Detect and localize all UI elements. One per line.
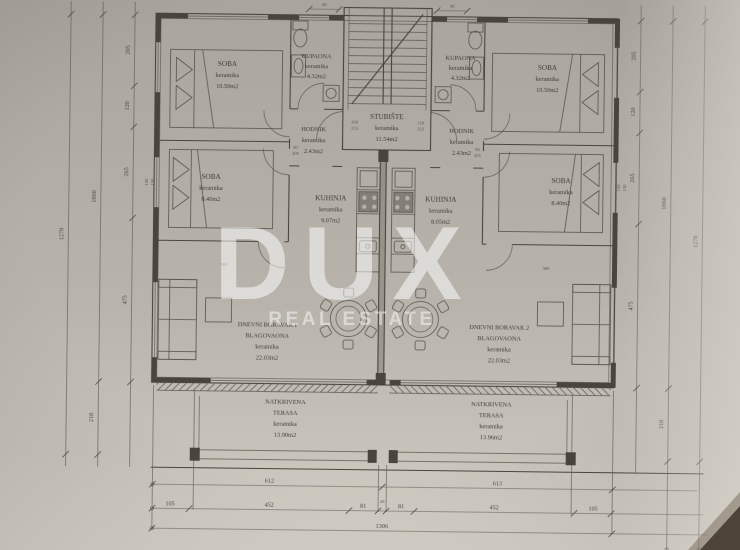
- page-edge-highlight: [620, 0, 740, 550]
- floorplan-photo: SOBA keramika 10.50m2 SOBA keramika 10.5…: [0, 0, 740, 550]
- floorplan-canvas: SOBA keramika 10.50m2 SOBA keramika 10.5…: [0, 0, 740, 550]
